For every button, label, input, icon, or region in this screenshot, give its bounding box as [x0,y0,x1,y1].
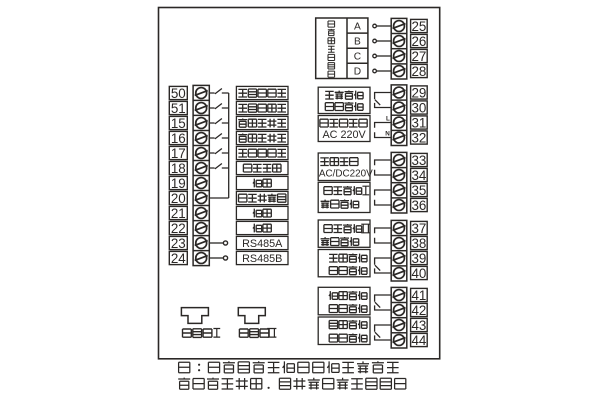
svg-text:26: 26 [411,34,426,49]
svg-text:23: 23 [171,236,186,251]
svg-text:31: 31 [411,115,426,130]
svg-text:29: 29 [411,85,426,100]
svg-text:41: 41 [411,288,426,303]
svg-text:35: 35 [411,183,426,198]
svg-text:28: 28 [411,64,426,79]
svg-text:27: 27 [411,49,426,64]
svg-text:B: B [354,37,361,48]
svg-text:A: A [354,22,361,33]
svg-text:C: C [354,52,361,63]
svg-text:D: D [354,67,361,78]
svg-text:AC 220V: AC 220V [322,129,366,141]
svg-text:AC/DC220V: AC/DC220V [319,168,373,179]
svg-text:25: 25 [411,19,426,34]
svg-text:51: 51 [171,101,186,116]
svg-text:38: 38 [411,236,426,251]
svg-text:34: 34 [411,168,426,183]
svg-text:21: 21 [171,206,186,221]
svg-text:36: 36 [411,198,426,213]
svg-text:50: 50 [171,86,186,101]
svg-text:32: 32 [411,130,426,145]
svg-text:43: 43 [411,318,426,333]
svg-text:RS485A: RS485A [242,238,283,250]
svg-text:17: 17 [171,146,186,161]
svg-text:37: 37 [411,221,426,236]
svg-text:33: 33 [411,153,426,168]
svg-text:16: 16 [171,131,186,146]
svg-text:39: 39 [411,251,426,266]
svg-text:L: L [386,116,390,123]
svg-text:22: 22 [171,221,186,236]
svg-text:24: 24 [171,251,186,266]
svg-text:15: 15 [171,116,186,131]
svg-text:44: 44 [411,333,426,348]
svg-text:19: 19 [171,176,186,191]
svg-text:40: 40 [411,266,426,281]
svg-text:20: 20 [171,191,186,206]
svg-text:42: 42 [411,303,426,318]
svg-text:18: 18 [171,161,186,176]
svg-text:N: N [385,131,390,138]
svg-text:RS485B: RS485B [242,253,282,265]
svg-text:30: 30 [411,100,426,115]
